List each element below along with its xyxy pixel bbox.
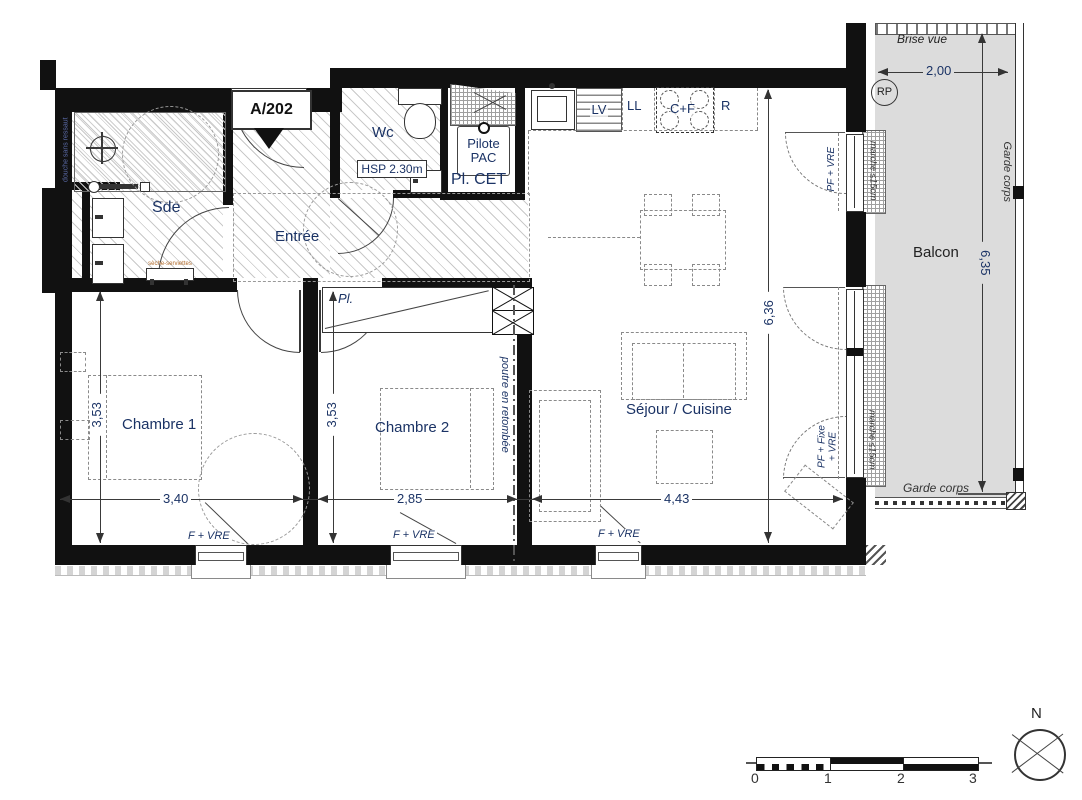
balcony-rail-bottom <box>875 497 1015 509</box>
wall-cet-right <box>515 88 525 200</box>
counter-divider <box>654 88 655 130</box>
washer-label: LL <box>627 99 641 113</box>
ch1-door-swing <box>237 290 300 353</box>
window-ch1-sill <box>191 565 251 579</box>
dim-arrow <box>329 291 337 301</box>
rail-post <box>1013 468 1024 481</box>
balcony-rail-right <box>1015 23 1024 502</box>
pilaster-top-left <box>40 60 56 90</box>
window-frame <box>598 552 639 561</box>
bed-ch2 <box>380 388 494 490</box>
shower-annotation: douche sans ressaut <box>62 106 69 194</box>
hsp-box: HSP 2.30m <box>357 160 427 178</box>
shower-faucet <box>88 181 100 193</box>
scale-fill <box>904 764 978 770</box>
dim-arrow <box>96 533 104 543</box>
towel-radiator-label: sèche-serviettes <box>140 261 200 267</box>
pf-fixe-vre-label: PF + Fixe + VRE <box>818 415 839 479</box>
wall-top-main <box>338 68 855 88</box>
handle <box>95 215 103 219</box>
dim-arrow <box>532 495 542 503</box>
pilote-dot <box>478 122 490 134</box>
room-label-ch1: Chambre 1 <box>122 417 196 433</box>
balcony-door-low-swing-a <box>783 287 846 350</box>
window-sejour <box>595 545 642 567</box>
dim-arrow <box>293 495 303 503</box>
pf-vre-label: PF + VRE <box>827 137 838 201</box>
scale-tick-3: 3 <box>969 771 977 786</box>
toilet-bowl <box>404 103 436 139</box>
wall-right-top <box>846 23 866 132</box>
handle <box>95 261 103 265</box>
radiator-leg <box>150 279 154 285</box>
corner-hachure <box>866 545 886 565</box>
zone-line <box>548 237 640 238</box>
pac-unit <box>450 84 516 126</box>
pf-fixe-line2: + VRE <box>828 415 839 479</box>
hsp-label: HSP 2.30m <box>361 163 422 176</box>
sofa-split <box>683 343 684 398</box>
shower-head-icon <box>90 136 116 162</box>
radiator-leg <box>184 279 188 285</box>
dim-arrow <box>329 533 337 543</box>
pl-cet-label: Pl. CET <box>451 172 506 189</box>
dim-sej-w: 4,43 <box>661 492 692 506</box>
counter-edge <box>528 130 758 131</box>
scale-tick-0: 0 <box>751 771 759 786</box>
cooktop: C+F <box>656 87 714 133</box>
rail-corner-hatch <box>1006 492 1026 510</box>
room-label-balcon: Balcon <box>913 245 959 261</box>
door-post <box>847 348 863 356</box>
window-sejour-sill <box>591 565 646 579</box>
balcony-door-low <box>846 289 864 478</box>
room-label-ch2: Chambre 2 <box>375 420 449 436</box>
nightstand <box>60 352 86 372</box>
bed-ch2-headline <box>470 388 471 488</box>
counter-return <box>528 131 529 195</box>
turning-circle-sde <box>122 106 219 203</box>
window-ch1 <box>195 545 247 567</box>
compass-north-label: N <box>1031 706 1042 722</box>
marche-top-label: marche ≤15cm <box>868 133 877 209</box>
unit-label-box: A/202 <box>231 90 312 130</box>
f-vre-label-1: F + VRE <box>186 531 232 543</box>
vanity-cabinet-2 <box>92 244 124 284</box>
dim-arrow <box>978 33 986 43</box>
scale-segment-0-1 <box>756 757 832 771</box>
pilaster-left <box>42 188 55 293</box>
dim-ch1-w: 3,40 <box>160 492 191 506</box>
dim-arrow <box>764 532 772 542</box>
scale-segment-2-3 <box>903 757 979 771</box>
rail-post <box>1013 186 1024 199</box>
garde-corps-leader <box>958 493 1006 495</box>
window-frame <box>198 552 244 561</box>
wall-wc-left <box>330 88 340 198</box>
handle <box>413 179 418 183</box>
f-vre-label-3: F + VRE <box>596 529 642 541</box>
dim-arrow <box>96 291 104 301</box>
window-ch2 <box>390 545 462 567</box>
dishwasher-label: LV <box>590 103 609 117</box>
balcony-door-top <box>846 134 864 212</box>
glazing-line <box>854 136 855 208</box>
armchair-seat <box>539 400 591 512</box>
room-label-wc: Wc <box>372 125 394 141</box>
scale-fill <box>831 758 904 764</box>
chair <box>692 264 720 286</box>
dim-bal-w: 2,00 <box>923 64 954 78</box>
scale-tick-2: 2 <box>897 771 905 786</box>
scale-segment-1-2 <box>830 757 905 771</box>
dim-arrow <box>318 495 328 503</box>
dining-table <box>640 210 726 270</box>
scale-checker <box>757 764 831 770</box>
entry-arrow-icon <box>254 128 284 149</box>
bed-ch1-headline <box>106 375 107 478</box>
fridge-label: R <box>721 99 730 113</box>
dim-arrow <box>764 89 772 99</box>
window-ch2-sill <box>386 565 466 579</box>
chair <box>692 194 720 216</box>
f-vre-label-2: F + VRE <box>391 530 437 542</box>
coffee-table <box>656 430 713 484</box>
floor-plan: A/202 sèche-serviettes douche sans ress <box>0 0 1082 800</box>
room-label-entree: Entrée <box>275 229 319 245</box>
counter-divider <box>622 88 623 130</box>
rp-label: RP <box>877 87 892 99</box>
dim-ch2-w: 2,85 <box>394 492 425 506</box>
door-leader <box>838 133 839 211</box>
dim-sej-h: 6,36 <box>762 292 776 334</box>
unit-label: A/202 <box>250 102 293 119</box>
shower-head-cross <box>101 132 103 164</box>
kitchen-faucet <box>549 83 555 89</box>
dim-bal-h: 6,35 <box>978 242 992 284</box>
room-label-sde: Sde <box>152 200 180 217</box>
window-frame <box>393 552 459 561</box>
pf-fixe-line1: PF + Fixe <box>818 415 829 479</box>
sofa-seat <box>632 343 736 400</box>
vanity-divider <box>82 190 90 282</box>
dim-arrow <box>507 495 517 503</box>
garde-corps-right-label: Garde corps <box>1000 137 1012 207</box>
dim-arrow <box>833 495 843 503</box>
cooktop-label: C+F <box>670 102 695 116</box>
turning-circle-ch1 <box>198 433 310 545</box>
dim-arrow <box>998 68 1008 76</box>
dim-ch1-h: 3,53 <box>90 394 104 436</box>
nightstand <box>60 420 90 440</box>
wall-ch1-ch2 <box>303 278 318 565</box>
scale-tick-1: 1 <box>824 771 832 786</box>
wall-right-mid <box>846 212 866 287</box>
pilote-pac-label: Pilote PAC <box>461 137 507 164</box>
counter-divider <box>757 88 758 130</box>
chair <box>644 194 672 216</box>
wall-top-left <box>55 88 231 112</box>
glazing-line <box>854 291 855 474</box>
kitchen-sink-basin <box>537 96 567 122</box>
chair <box>644 264 672 286</box>
dim-ch2-h: 3,53 <box>325 394 339 436</box>
dim-arrow <box>978 481 986 491</box>
wall-bottom-d <box>640 545 866 565</box>
dim-arrow <box>878 68 888 76</box>
vanity-cabinet-1 <box>92 198 124 238</box>
brise-vue-label: Brise vue <box>897 33 947 46</box>
beam-label: poutre en retombée <box>498 340 510 470</box>
room-label-sejour: Séjour / Cuisine <box>626 402 732 418</box>
counter-divider <box>714 88 715 130</box>
closet-label: Pl. <box>338 292 353 306</box>
dishwasher: LV <box>576 88 622 132</box>
marche-bottom-label: marche ≤15cm <box>867 402 876 478</box>
rp-marker: RP <box>871 79 898 106</box>
dim-arrow <box>60 495 70 503</box>
beam-line <box>513 285 515 565</box>
wall-bottom-a <box>55 545 195 565</box>
